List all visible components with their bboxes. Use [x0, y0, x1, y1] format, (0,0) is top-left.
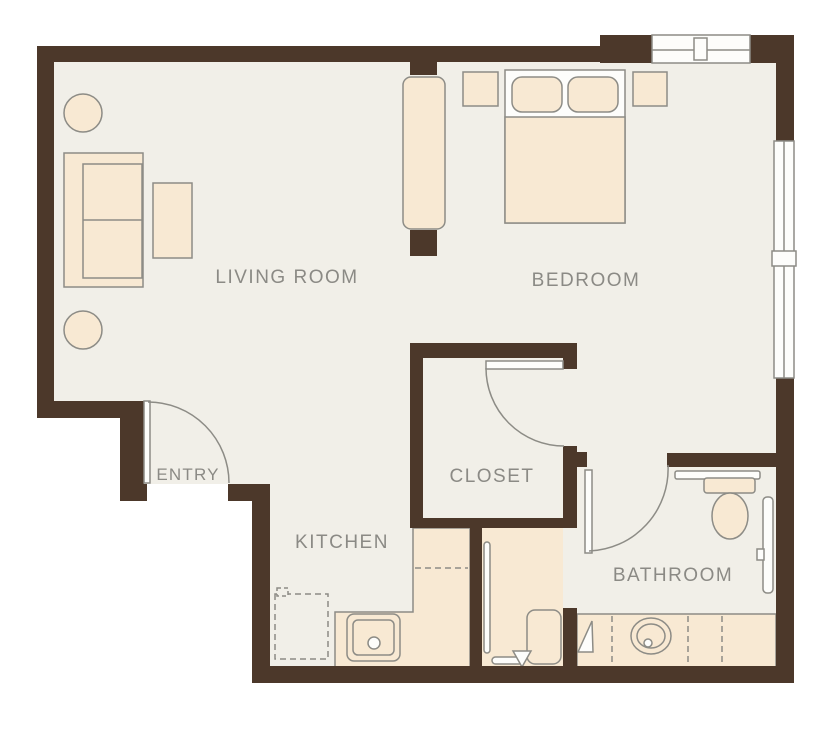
bathroom-grab-bar-mount	[757, 549, 764, 560]
wall-shower-right	[563, 608, 577, 668]
pillow-right-icon	[568, 77, 618, 112]
wall-bathroom-door-stub	[577, 452, 587, 467]
round-side-table-bottom-icon	[64, 311, 102, 349]
toilet-tank-icon	[704, 478, 755, 493]
tall-cabinet-icon	[403, 77, 445, 229]
wall-step-horizontal	[37, 401, 123, 418]
closet-door-leaf	[486, 361, 563, 369]
entry-label: ENTRY	[156, 465, 219, 485]
wall-closet-right-lower	[563, 446, 577, 528]
kitchen-sink-drain	[368, 637, 380, 649]
wall-closet-left	[410, 343, 423, 528]
shower-grab-bar-left-icon	[484, 542, 490, 653]
wall-entry-right	[228, 484, 270, 501]
round-side-table-top-icon	[64, 94, 102, 132]
kitchen-label: KITCHEN	[295, 532, 389, 554]
wall-closet-top	[410, 343, 577, 358]
wall-closet-right-upper	[563, 343, 577, 369]
closet-label: CLOSET	[449, 466, 534, 488]
entry-door-leaf	[144, 401, 150, 483]
pillow-left-icon	[512, 77, 562, 112]
refrigerator-handle	[277, 588, 288, 596]
living-room-label: LIVING ROOM	[215, 267, 358, 289]
wall-bathroom-top	[667, 453, 776, 467]
bedroom-label: BEDROOM	[532, 270, 641, 292]
floor-plan: LIVING ROOM BEDROOM ENTRY CLOSET KITCHEN…	[0, 0, 838, 731]
vanity-counter-icon	[577, 614, 776, 668]
sofa-cushions	[83, 164, 142, 278]
wall-kitchen-left	[252, 501, 270, 683]
wall-divider-stub-top	[410, 62, 437, 75]
wall-closet-bottom	[410, 518, 577, 528]
toilet-bowl-icon	[712, 493, 748, 539]
wall-left	[37, 46, 54, 418]
bathroom-grab-bar-icon	[763, 497, 773, 593]
coffee-table-icon	[153, 183, 192, 258]
bathroom-door-leaf	[585, 470, 592, 553]
wall-entry-left	[120, 484, 147, 501]
wall-bottom	[252, 666, 794, 683]
bedroom-right-window-latch	[772, 251, 796, 266]
refrigerator-icon	[275, 594, 328, 659]
floor-plan-drawing	[0, 0, 838, 731]
shower-bench-icon	[527, 610, 561, 664]
wall-top-living	[37, 46, 600, 62]
bathroom-label: BATHROOM	[613, 565, 733, 587]
wall-shower-left	[470, 528, 482, 668]
nightstand-right-icon	[633, 72, 667, 106]
bedroom-top-window-latch	[694, 38, 707, 60]
bed-mattress	[505, 117, 625, 223]
floor-closet	[423, 358, 563, 518]
wall-divider-stub-bottom	[410, 230, 437, 256]
nightstand-left-icon	[463, 72, 498, 106]
vanity-sink-drain	[644, 639, 652, 647]
